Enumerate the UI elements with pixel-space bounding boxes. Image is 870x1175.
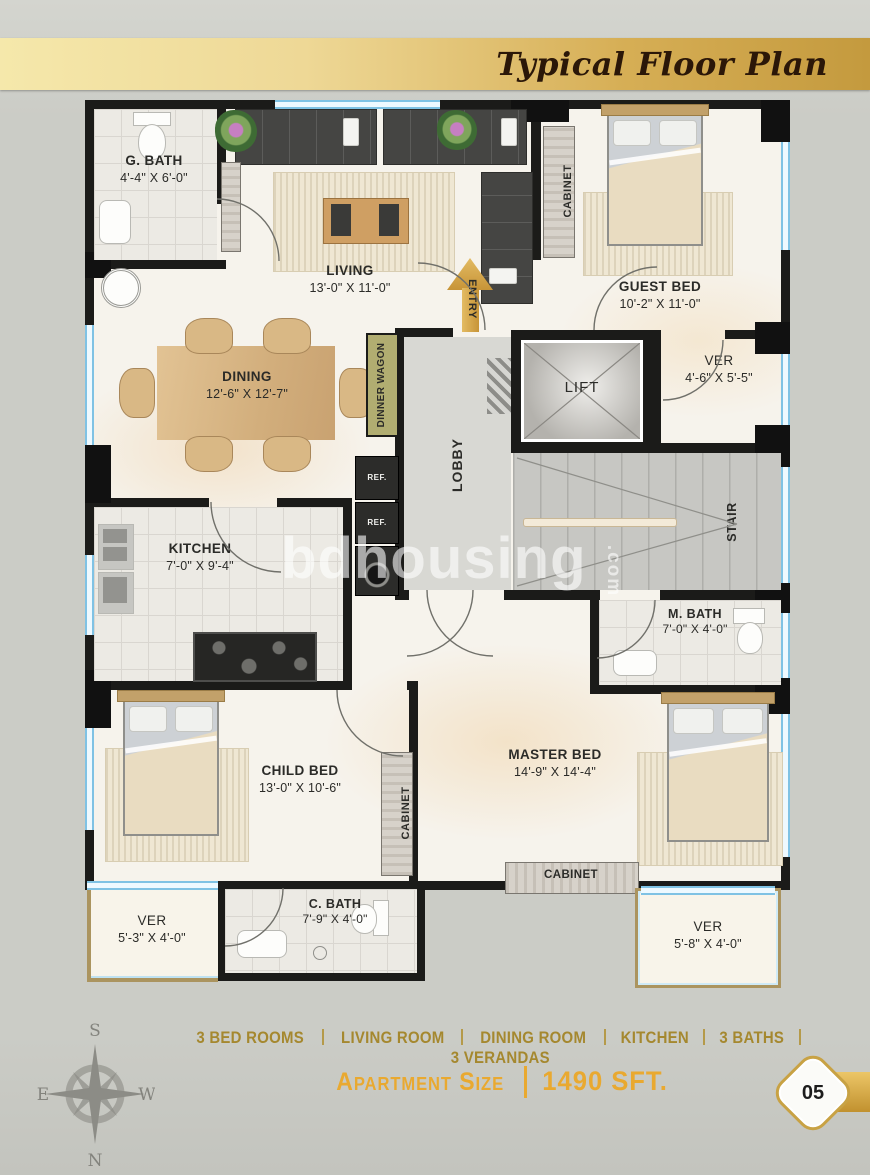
window-stair-right [781, 465, 790, 585]
mid-cabinet-label: CABINET [397, 758, 415, 868]
window-ver-left [87, 881, 218, 890]
feature-item: 3 BATHS [720, 1028, 785, 1048]
plant-icon [437, 110, 477, 150]
wall [417, 881, 425, 981]
sofa-pillow [501, 118, 517, 146]
compass-e: E [37, 1085, 49, 1105]
kitchen-sink-icon [98, 572, 134, 614]
plant-icon [215, 110, 257, 152]
fridge-icon: REF. [355, 502, 399, 544]
page-number: 05 [785, 1065, 841, 1121]
child-bed-icon [123, 700, 219, 836]
toilet-icon [351, 904, 377, 934]
wall [217, 881, 425, 889]
feature-item: DINING ROOM [480, 1028, 586, 1048]
lift-door-hatch [487, 358, 511, 414]
table-mat [331, 204, 351, 236]
chair-icon [263, 436, 311, 472]
ver-right-floor [635, 888, 781, 988]
window-mbath-right [781, 610, 790, 680]
kitchen-sink-icon [98, 524, 134, 570]
wall-kitchen-right [343, 498, 352, 690]
lift-car [521, 340, 643, 442]
compass-s: S [89, 1021, 101, 1041]
wall-childbed-top [94, 681, 343, 690]
table-mat [379, 204, 399, 236]
window-kitchen-left [85, 555, 94, 635]
feature-item: KITCHEN [620, 1028, 688, 1048]
guest-cabinet-label: CABINET [559, 136, 577, 246]
compass-n: N [88, 1151, 103, 1170]
dining-table-icon [157, 346, 335, 440]
chair-icon [119, 368, 155, 418]
feature-item: 3 VERANDAS [450, 1048, 549, 1068]
chair-icon [185, 318, 233, 354]
window-guestbed-right [781, 140, 790, 250]
pillar [755, 322, 790, 354]
stair-label: STAIR [723, 467, 741, 577]
bath-sink-icon [613, 650, 657, 676]
floor-plan-page: { "header": { "title": "Typical Floor Pl… [0, 0, 870, 1175]
floor-plan: G. BATH 4'-4" X 6'-0" LIVING 13'-0" X 11… [85, 100, 790, 1010]
page-title: Typical Floor Plan [496, 45, 870, 83]
ver-left-floor [87, 888, 218, 982]
apartment-size-value: 1490 SFT. [542, 1066, 667, 1097]
wash-basin-icon [101, 268, 141, 308]
washing-machine-icon [355, 546, 399, 596]
feature-item: LIVING ROOM [341, 1028, 444, 1048]
pillar [85, 445, 111, 503]
floor-drain-icon [313, 946, 327, 960]
wall-kitchen-top [94, 498, 209, 507]
lift-x-lines [524, 343, 640, 439]
chair-icon [185, 436, 233, 472]
wall [504, 590, 600, 600]
tv-unit-icon [221, 162, 241, 252]
master-bed-icon [667, 702, 769, 842]
stair-handrail [523, 518, 677, 527]
window-ver-right [641, 886, 775, 895]
wall [217, 881, 225, 981]
lobby-label: LOBBY [448, 410, 466, 520]
title-banner: Typical Floor Plan [0, 38, 870, 90]
pillar [761, 100, 790, 142]
window-ver-top-right [781, 350, 790, 425]
guest-bed-icon [607, 114, 703, 246]
toilet-icon [737, 622, 763, 654]
wall [277, 498, 352, 507]
bath-sink-icon [237, 930, 287, 958]
apartment-size-label: Apartment Size [337, 1068, 505, 1097]
toilet-icon [138, 124, 166, 160]
sofa-pillow [343, 118, 359, 146]
chair-icon [263, 318, 311, 354]
window-living-top [275, 100, 440, 109]
window-childbed-left [85, 725, 94, 830]
stove-icon [193, 632, 317, 682]
sofa-pillow [489, 268, 517, 284]
dinner-wagon-label: DINNER WAGON [373, 330, 391, 440]
wall [217, 973, 425, 981]
apartment-size-row: Apartment Size1490 SFT. [150, 1066, 850, 1098]
feature-list: 3 BED ROOMSLIVING ROOMDINING ROOMKITCHEN… [150, 1028, 850, 1068]
master-cabinet [505, 862, 639, 894]
window-dining-left [85, 325, 94, 445]
wall-mbath-left [590, 598, 599, 690]
bath-sink-icon [99, 200, 131, 244]
compass-rose: S N E W [35, 1018, 155, 1170]
feature-item: 3 BED ROOMS [197, 1028, 305, 1048]
fridge-icon: REF. [355, 456, 399, 500]
